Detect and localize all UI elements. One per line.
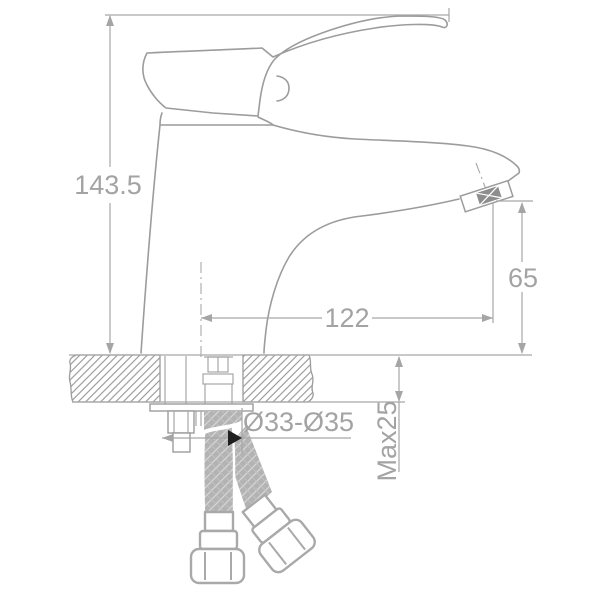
dim-label-spout-reach: 122 — [324, 303, 369, 333]
dim-deck-thickness: Max25 — [372, 356, 403, 482]
countertop-section — [69, 355, 532, 402]
faucet-handle — [143, 16, 447, 116]
hex-nut-straight — [191, 549, 244, 583]
spout-aerator — [460, 163, 513, 212]
dim-label-hole-diameter: Ø33-Ø35 — [243, 407, 354, 437]
arrowhead-up — [106, 15, 114, 26]
dim-spout-reach: 122 — [201, 203, 493, 333]
faucet-installation-diagram: 143.5 122 65 Max25 Ø33-Ø35 — [0, 0, 600, 600]
washer-plate — [150, 404, 253, 411]
arrowhead-left — [162, 434, 173, 442]
fixing-nut — [168, 411, 194, 452]
arrowhead-down — [518, 343, 526, 354]
deck-hatch-right — [243, 355, 313, 402]
arrowhead-down — [395, 391, 403, 402]
dim-outlet-height: 65 — [496, 201, 538, 354]
neck-right-edge — [258, 117, 273, 125]
cartridge-dome — [277, 76, 289, 101]
hose-connector-straight — [191, 512, 244, 583]
deck-hatch-left — [69, 355, 160, 402]
arrowhead-up — [518, 202, 526, 213]
mounting-stud — [203, 357, 233, 404]
dim-overall-height: 143.5 — [74, 8, 449, 354]
dim-label-overall-height: 143.5 — [74, 170, 142, 200]
arrowhead-left — [201, 314, 212, 322]
arrowhead-right — [482, 314, 493, 322]
spout-top-edge — [273, 125, 519, 184]
arrowhead-down — [106, 343, 114, 354]
lever-handle-outline — [143, 16, 447, 116]
arrowhead-up — [395, 356, 403, 367]
body-left-edge — [141, 113, 162, 353]
dim-label-outlet-height: 65 — [508, 263, 538, 293]
dim-label-deck-thickness: Max25 — [372, 400, 402, 481]
technical-drawing-page: 143.5 122 65 Max25 Ø33-Ø35 — [0, 0, 600, 600]
